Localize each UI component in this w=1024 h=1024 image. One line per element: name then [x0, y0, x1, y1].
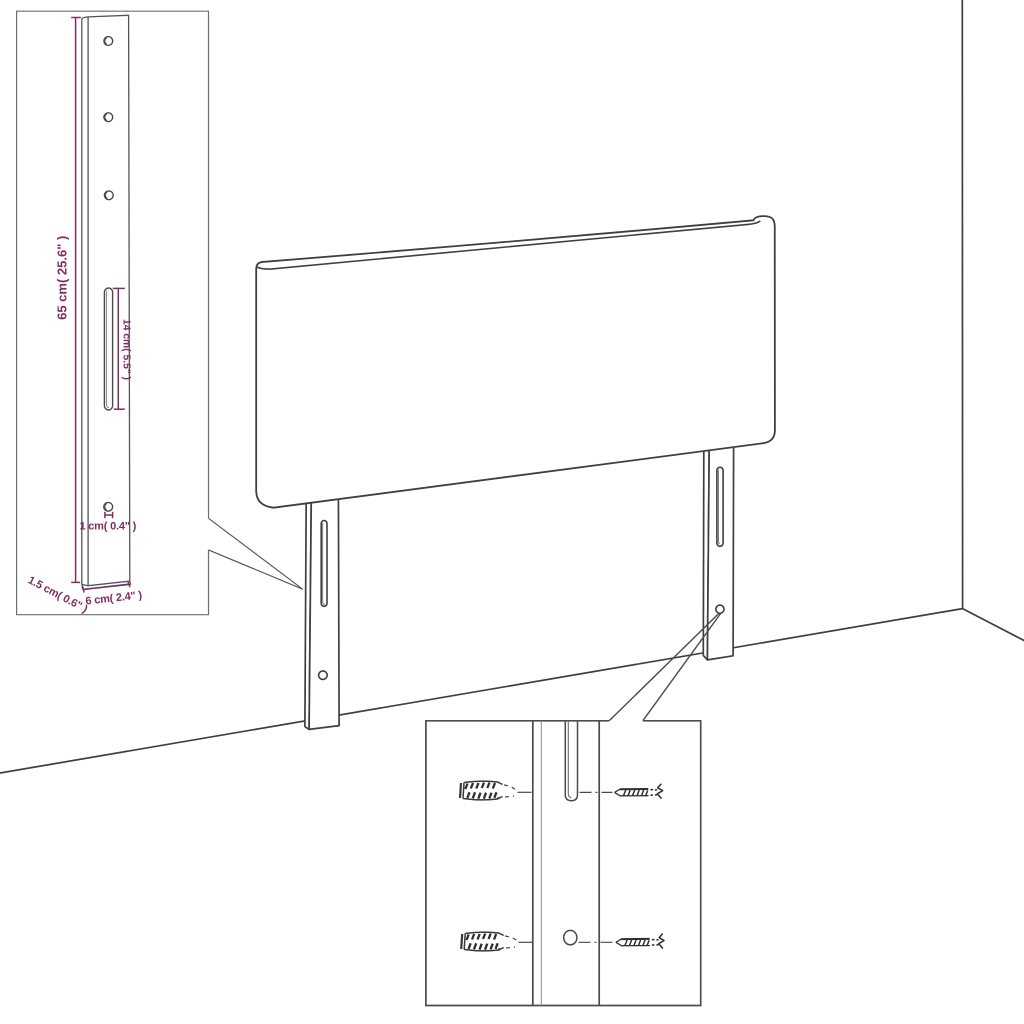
svg-text:1 cm( 0.4" ): 1 cm( 0.4" )	[79, 521, 136, 533]
svg-text:14 cm( 5.5" ): 14 cm( 5.5" )	[121, 319, 132, 380]
svg-text:65 cm( 25.6" ): 65 cm( 25.6" )	[55, 236, 70, 320]
